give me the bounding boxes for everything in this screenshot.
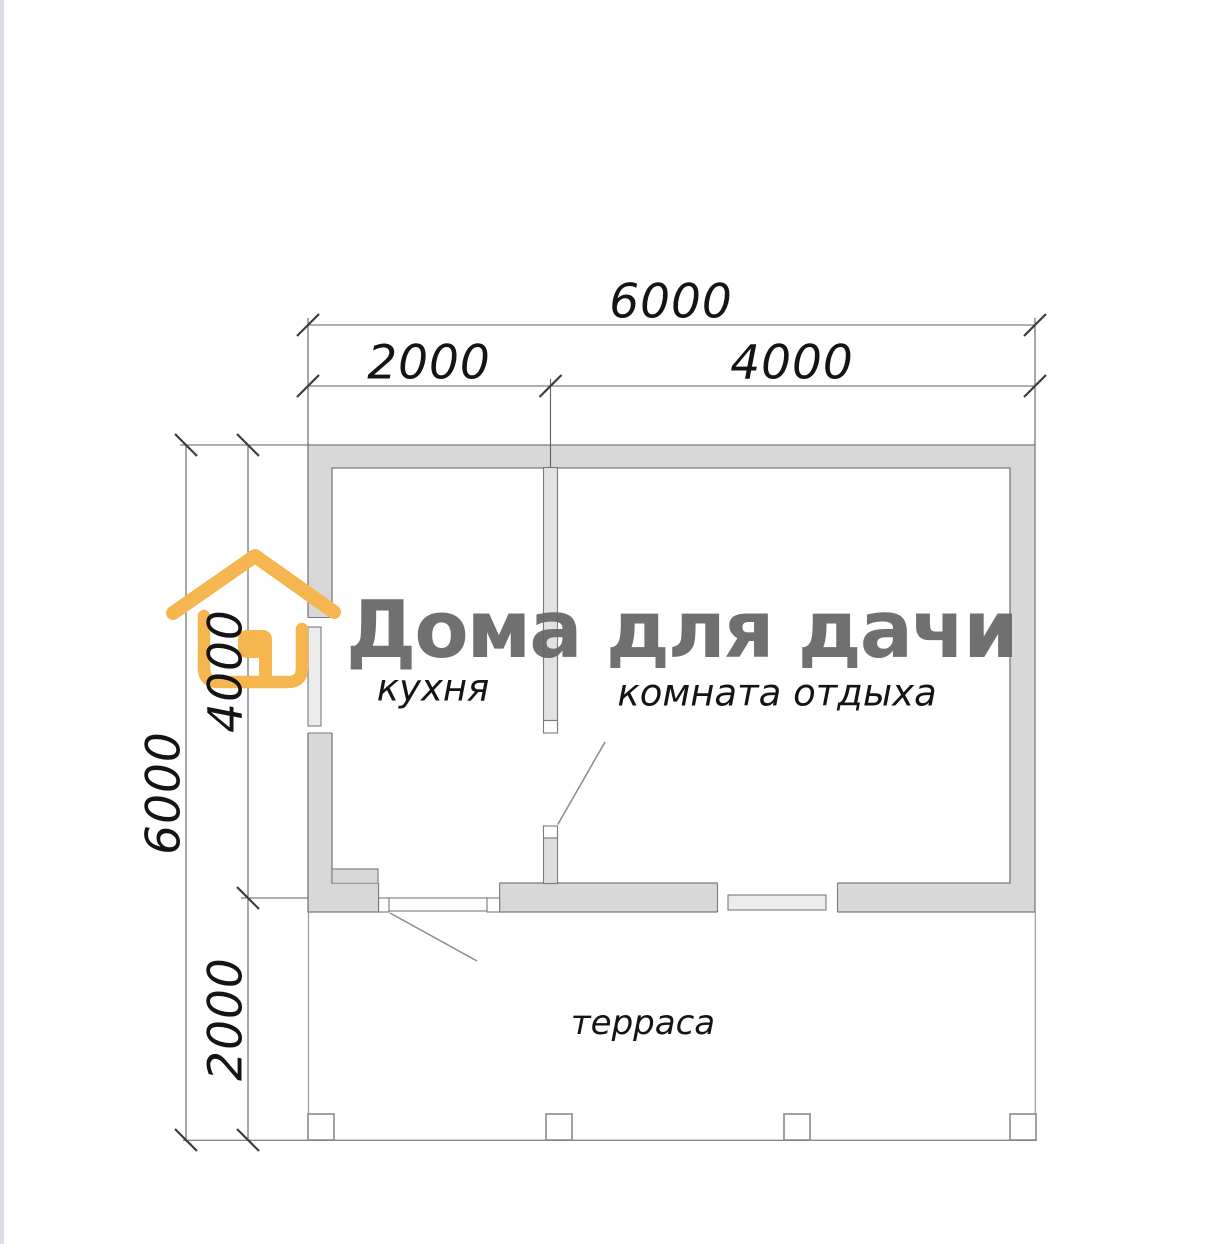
floorplan-page: Дома для дачи 6000 2000 4000 6000 4000 2… — [0, 0, 1216, 1244]
dim-top-left-segment: 2000 — [367, 336, 491, 391]
house-icon — [0, 0, 1216, 1244]
room-label-lounge: комната отдыха — [617, 672, 936, 715]
dim-left-total: 6000 — [137, 731, 192, 855]
dim-top-right-segment: 4000 — [730, 336, 854, 391]
room-label-kitchen: кухня — [377, 667, 490, 710]
dim-top-total: 6000 — [609, 275, 733, 330]
dim-left-lower-segment: 2000 — [199, 957, 254, 1081]
room-label-terrace: терраса — [571, 1003, 715, 1043]
dim-left-upper-segment: 4000 — [199, 609, 254, 733]
